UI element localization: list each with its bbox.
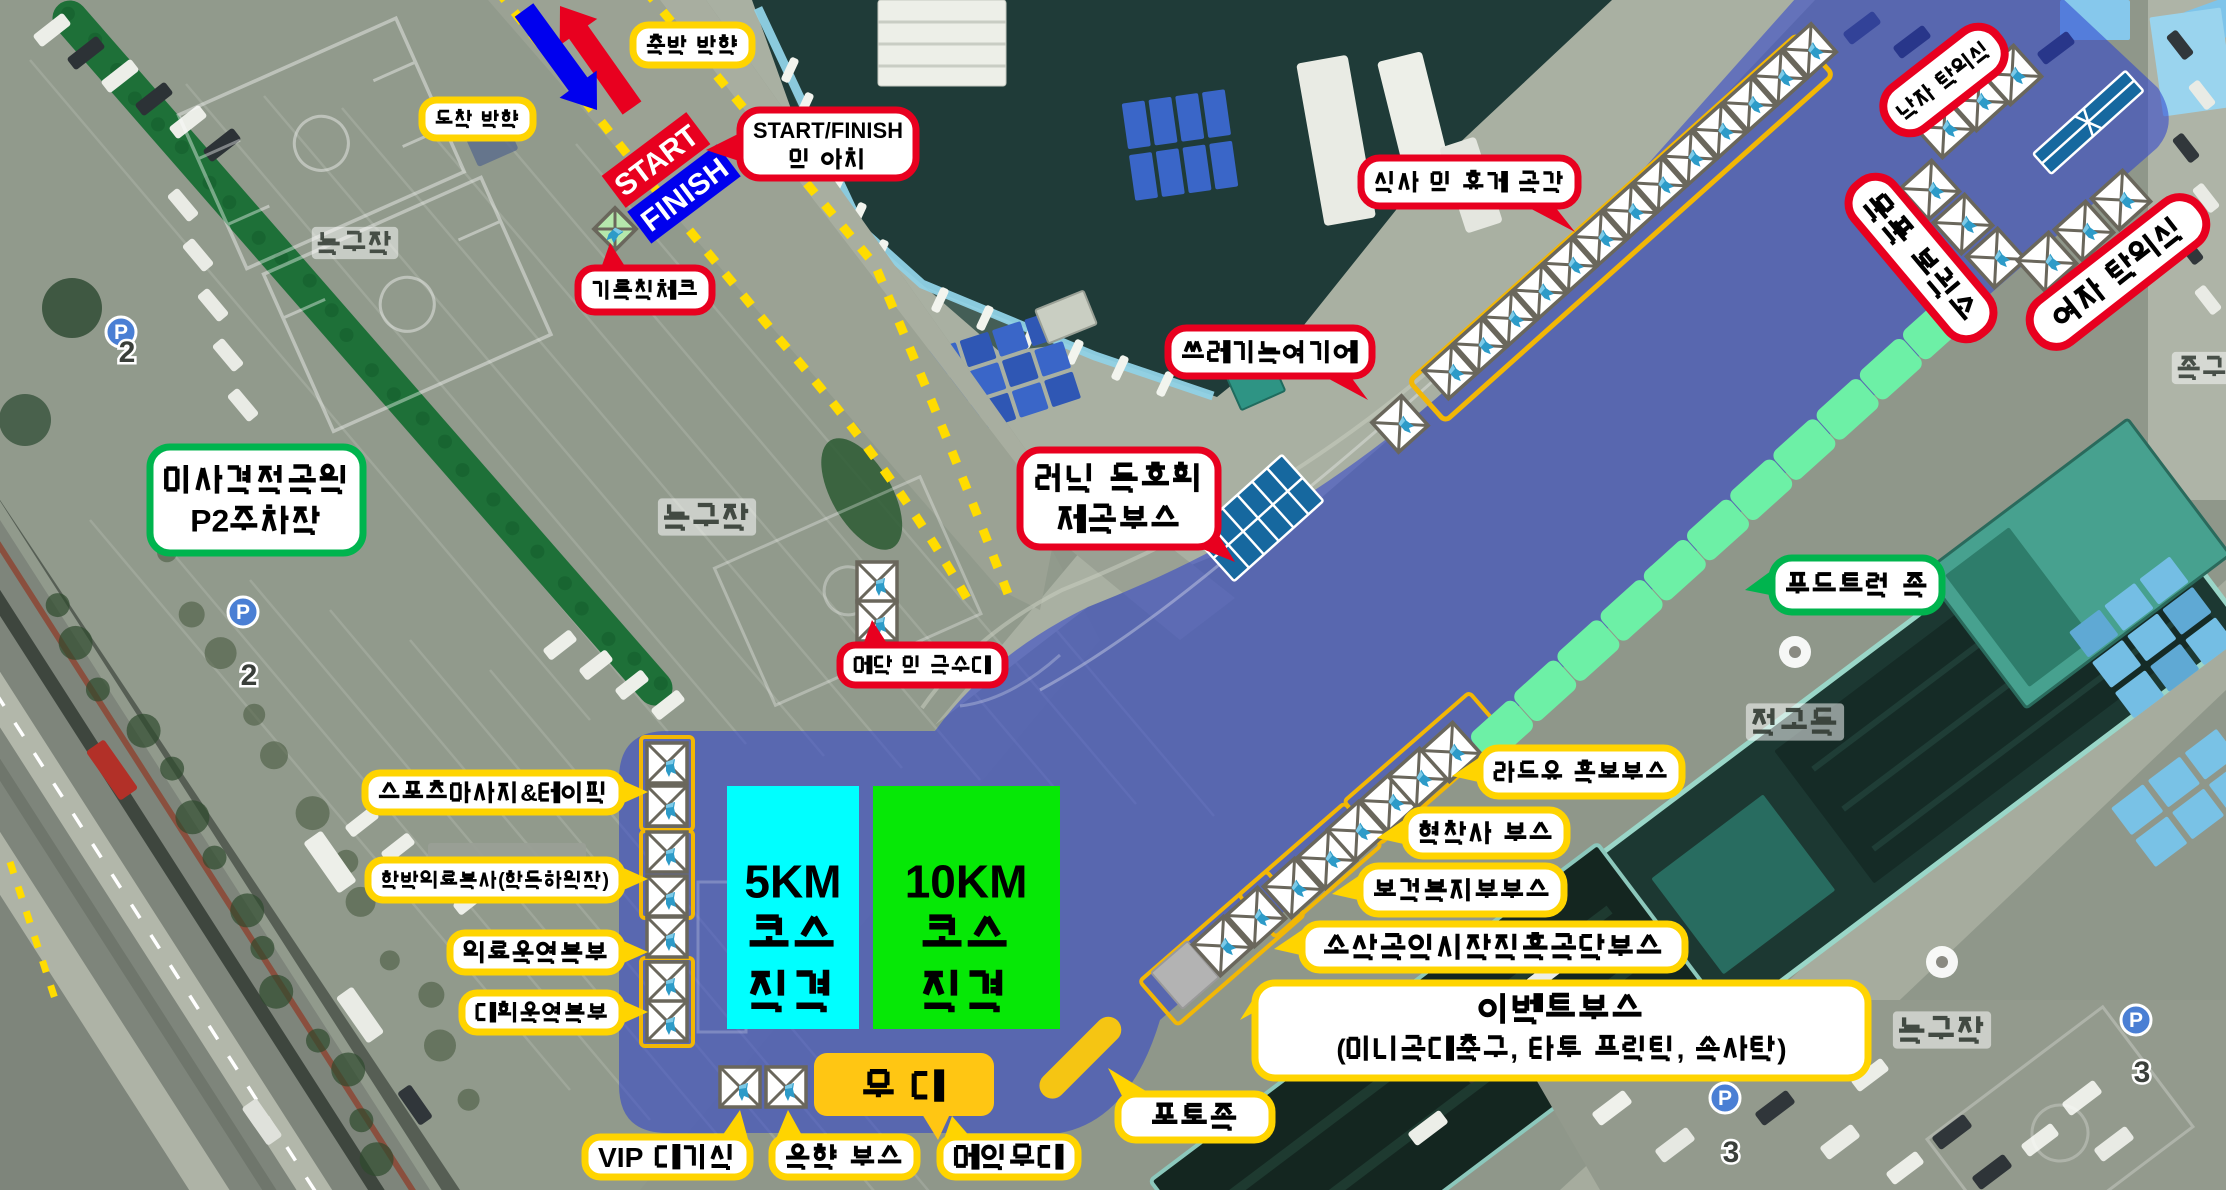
- svg-text:2: 2: [241, 659, 258, 692]
- svg-text:(: (: [498, 870, 505, 892]
- svg-text:,: ,: [1510, 1033, 1518, 1064]
- svg-text:3: 3: [2134, 1056, 2151, 1089]
- svg-text:P: P: [2129, 1009, 2143, 1032]
- svg-text:3: 3: [1723, 1136, 1740, 1169]
- svg-text:&: &: [520, 780, 537, 807]
- svg-text:P: P: [1718, 1087, 1732, 1110]
- svg-text:P2: P2: [190, 503, 229, 539]
- svg-text:10KM: 10KM: [905, 855, 1028, 907]
- svg-text:2: 2: [119, 336, 136, 369]
- svg-text:(: (: [1336, 1033, 1346, 1064]
- svg-text:,: ,: [1677, 1033, 1685, 1064]
- svg-text:): ): [602, 870, 609, 892]
- svg-text:START/FINISH: START/FINISH: [753, 118, 903, 143]
- svg-text:): ): [1777, 1033, 1786, 1064]
- svg-text:VIP: VIP: [598, 1141, 643, 1173]
- svg-text:P: P: [236, 601, 250, 624]
- svg-text:5KM: 5KM: [744, 855, 841, 907]
